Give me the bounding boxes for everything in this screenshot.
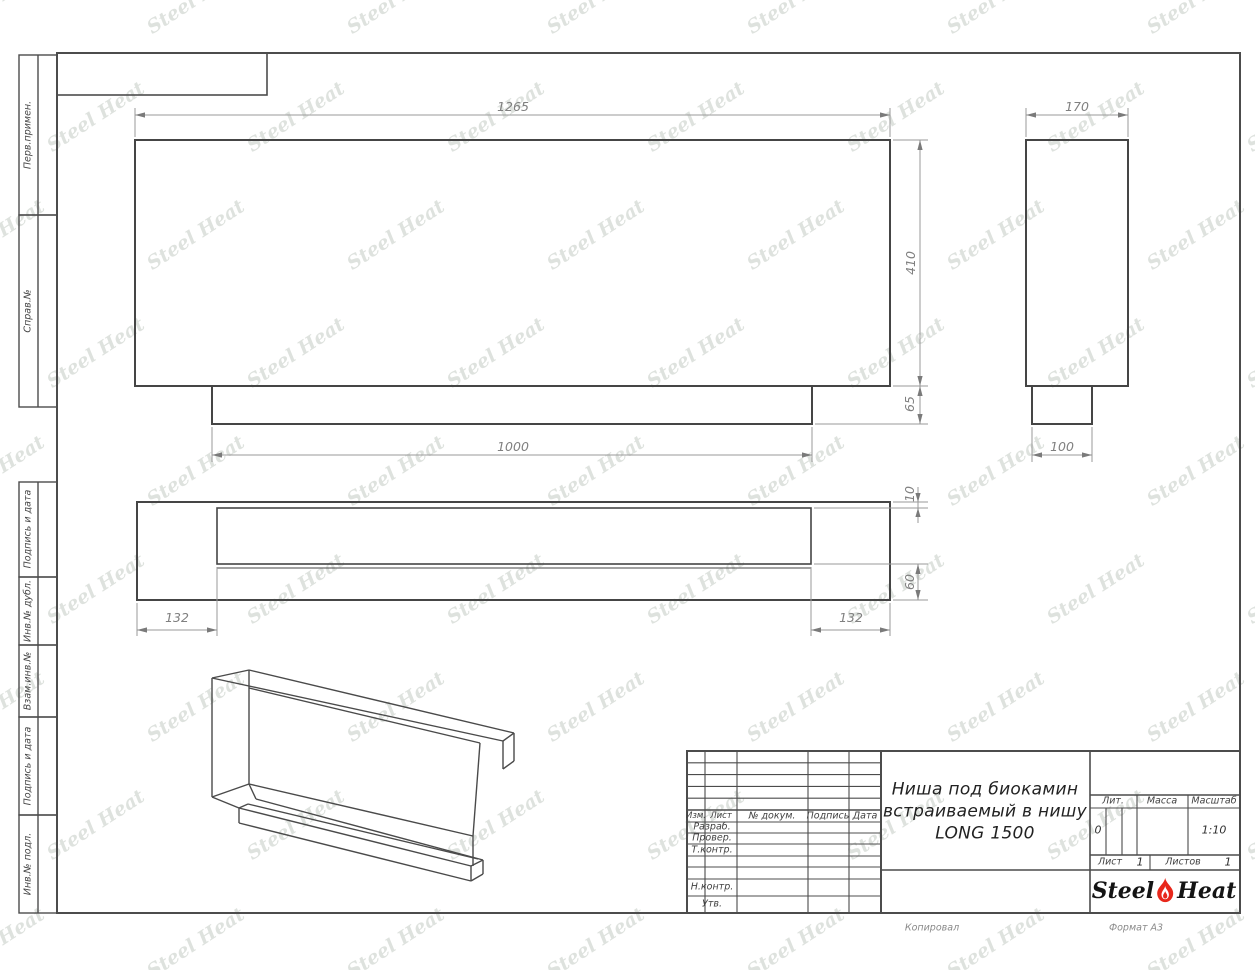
flame-icon — [1156, 878, 1175, 904]
titleblock-row-prover: Провер. — [692, 833, 731, 843]
dim-side-depth: 170 — [1065, 101, 1089, 114]
dim-plan-offset-right: 132 — [839, 612, 863, 625]
margin-label-podpis-data-2: Подпись и дата — [23, 727, 33, 806]
drawing-title-line2: встраиваемый в нишу — [883, 804, 1087, 821]
designation-box — [57, 53, 267, 95]
titleblock-col-izm: Изм. — [686, 812, 706, 821]
side-view — [1026, 140, 1128, 424]
dim-plan-gap-top: 10 — [904, 486, 917, 502]
margin-label-vzam-inv: Взам.инв.№ — [23, 652, 33, 710]
titleblock-lit-value: 0 — [1095, 825, 1102, 836]
titleblock-row-utv: Утв. — [702, 899, 722, 909]
dim-side-base-width: 100 — [1050, 441, 1074, 454]
drawing-title-line3: LONG 1500 — [935, 826, 1035, 843]
dim-front-height: 410 — [905, 251, 918, 275]
titleblock-row-nkontr: Н.контр. — [691, 882, 734, 892]
margin-label-inv-dubl: Инв.№ дубл. — [23, 580, 33, 642]
titleblock-col-sign: Подпись — [807, 811, 850, 821]
titleblock-sheets-value: 1 — [1225, 857, 1232, 868]
logo-heat-text: Heat — [1177, 878, 1236, 904]
titleblock-sheet-value: 1 — [1137, 857, 1144, 868]
iso-view — [212, 670, 514, 881]
margin-label-inv-podl: Инв.№ подл. — [23, 833, 33, 896]
titleblock-scale-value: 1:10 — [1202, 825, 1227, 836]
kopiroval-note: Копировал — [905, 923, 959, 933]
titleblock-row-tkontr: Т.контр. — [691, 845, 732, 855]
margin-label-perv-primen: Перв.примен. — [23, 101, 33, 169]
titleblock-row-razrab: Разраб. — [693, 822, 730, 832]
front-view — [135, 140, 890, 424]
margin-label-sprav-no: Справ.№ — [23, 289, 33, 332]
titleblock-col-list: Лист — [710, 812, 732, 821]
dim-front-width: 1265 — [497, 101, 529, 114]
dimension-lines — [135, 108, 1128, 636]
margin-label-podpis-data-1: Подпись и дата — [23, 490, 33, 569]
steelheat-logo: Steel Heat — [1092, 878, 1237, 904]
titleblock-lit-label: Лит. — [1102, 796, 1124, 806]
titleblock-sheets-label: Листов — [1165, 857, 1201, 867]
plan-view — [137, 502, 890, 600]
drawing-sheet: Steel HeatSteel HeatSteel HeatSteel Heat… — [0, 0, 1255, 970]
dim-plan-gap-bottom: 60 — [904, 574, 917, 590]
drawing-title-line1: Ниша под биокамин — [892, 782, 1079, 799]
dimension-arrows — [135, 112, 1128, 632]
titleblock-col-date: Дата — [853, 811, 878, 821]
titleblock-mass-label: Масса — [1147, 796, 1177, 806]
titleblock-scale-label: Масштаб — [1191, 796, 1236, 806]
dim-base-width: 1000 — [497, 441, 529, 454]
dim-plan-offset-left: 132 — [165, 612, 189, 625]
titleblock-sheet-label: Лист — [1098, 857, 1122, 867]
dim-base-height: 65 — [904, 396, 917, 412]
titleblock-col-doc: № докум. — [749, 811, 796, 821]
logo-steel-text: Steel — [1092, 878, 1154, 904]
drawing-linework — [0, 0, 1255, 970]
format-note: Формат А3 — [1109, 923, 1163, 933]
